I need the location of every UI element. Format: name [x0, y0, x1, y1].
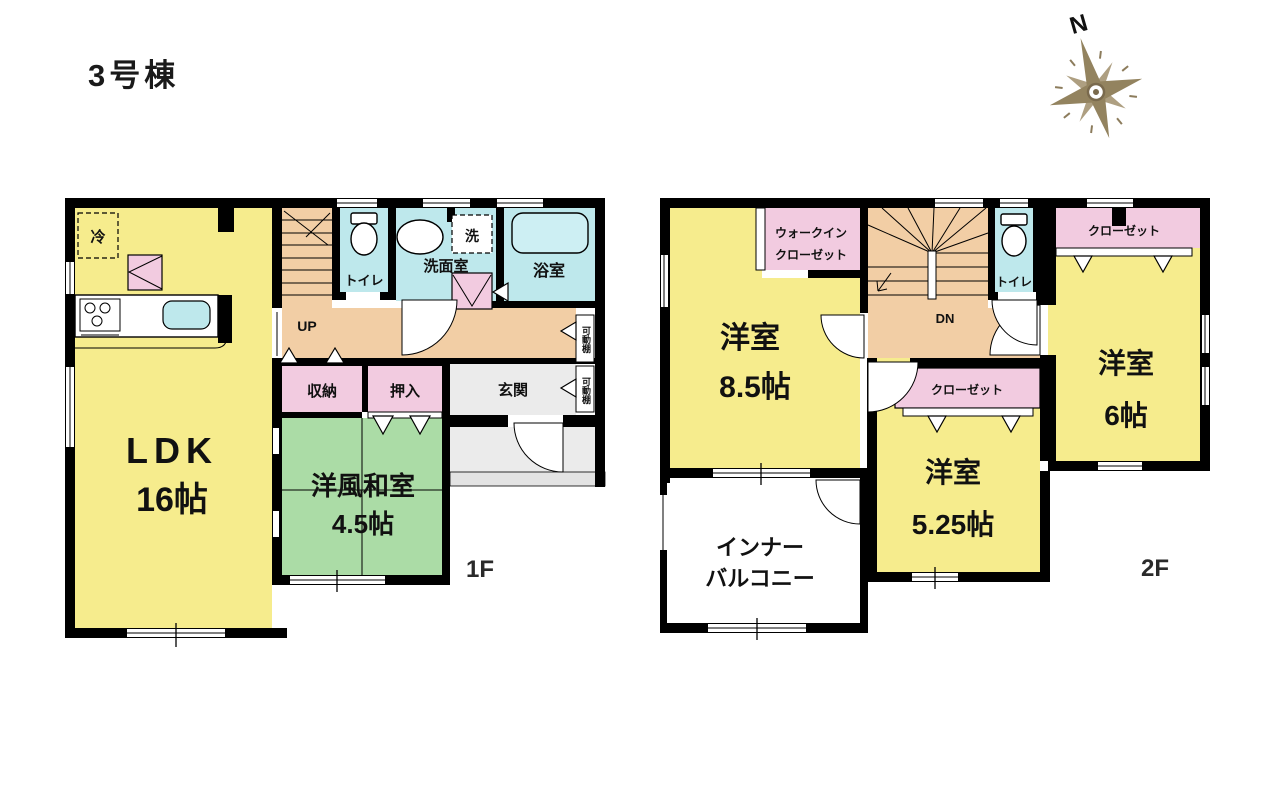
oshiire-label: 押入 [390, 382, 420, 400]
stairs-dn-label: DN [936, 311, 955, 326]
closet-opening [1056, 248, 1192, 256]
movable-shelf-label: 可動棚 [577, 368, 594, 412]
laundry-counter [452, 273, 492, 309]
compass-north-label: N [1067, 10, 1091, 40]
burner [100, 303, 110, 313]
closet-top-label: クローゼット [1088, 223, 1160, 238]
wic-label-line1: ウォークイン [775, 226, 847, 240]
bedroom3-name: 洋室 [1098, 347, 1154, 379]
fridge-label: 冷 [90, 228, 105, 246]
bathtub [512, 213, 588, 253]
floorplan-page: 3号棟 N [0, 0, 1280, 796]
cupboard [128, 255, 162, 290]
washitsu-name: 洋風和室 [311, 471, 415, 501]
toilet-label-2f: トイレ [996, 275, 1032, 289]
wic-label-line2: クローゼット [775, 247, 847, 262]
kitchen-divider-wall [218, 295, 232, 343]
bedroom1-size: 8.5帖 [719, 371, 791, 404]
bathroom-label: 浴室 [533, 261, 565, 280]
closet-mid-label: クローゼット [931, 382, 1003, 397]
washroom-label: 洗面室 [423, 257, 468, 275]
stairs-up-label: UP [297, 318, 316, 334]
burner [85, 303, 95, 313]
sliding-door-marker [273, 511, 279, 537]
floor-plan-2f: ウォークイン クローゼット トイレ DN クローゼット クローゼット 洋室 8.… [650, 195, 1220, 655]
burner [92, 316, 102, 326]
ldk-size: 16帖 [136, 481, 208, 519]
washitsu-size: 4.5帖 [332, 509, 394, 539]
washbasin [397, 220, 443, 254]
toilet-label: トイレ [344, 273, 383, 288]
floor-plan-1f: 冷 UP トイレ 洗 洗面室 浴室 収納 押入 玄関 LDK 16帖 洋風和室 … [60, 195, 620, 655]
door-gap [346, 292, 380, 300]
room-walk-in-closet [762, 208, 860, 278]
ldk-name: LDK [126, 430, 218, 471]
stove [80, 299, 120, 331]
bedroom2-name: 洋室 [925, 456, 981, 488]
floor-label-2f: 2F [1141, 555, 1169, 582]
balcony-label-line2: バルコニー [705, 566, 815, 591]
stair-rail-slot [928, 251, 936, 299]
toilet-bowl [351, 223, 377, 255]
compass-rose: N [1012, 10, 1176, 160]
floor-label-1f: 1F [466, 556, 494, 583]
compass-star: N [1027, 10, 1156, 151]
kitchen-sink [163, 301, 210, 329]
storage-label: 収納 [307, 382, 337, 400]
balcony-label-line1: インナー [716, 535, 804, 560]
toilet-tank [1001, 214, 1027, 225]
movable-shelf-label: 可動棚 [577, 317, 594, 361]
bedroom1-name: 洋室 [720, 321, 780, 355]
bedroom3-size: 6帖 [1104, 400, 1148, 431]
entrance-porch [450, 472, 605, 486]
sliding-door-marker [273, 428, 279, 454]
toilet-bowl [1002, 226, 1026, 256]
closet-opening [903, 408, 1033, 416]
room-ldk [75, 208, 272, 628]
door-gap [998, 292, 1036, 300]
bedroom2-size: 5.25帖 [912, 509, 995, 540]
genkan-label: 玄関 [498, 381, 528, 399]
closet-opening [762, 270, 808, 278]
washer-label: 洗 [465, 228, 479, 244]
wic-partition [756, 208, 765, 270]
page-title: 3号棟 [88, 50, 179, 95]
